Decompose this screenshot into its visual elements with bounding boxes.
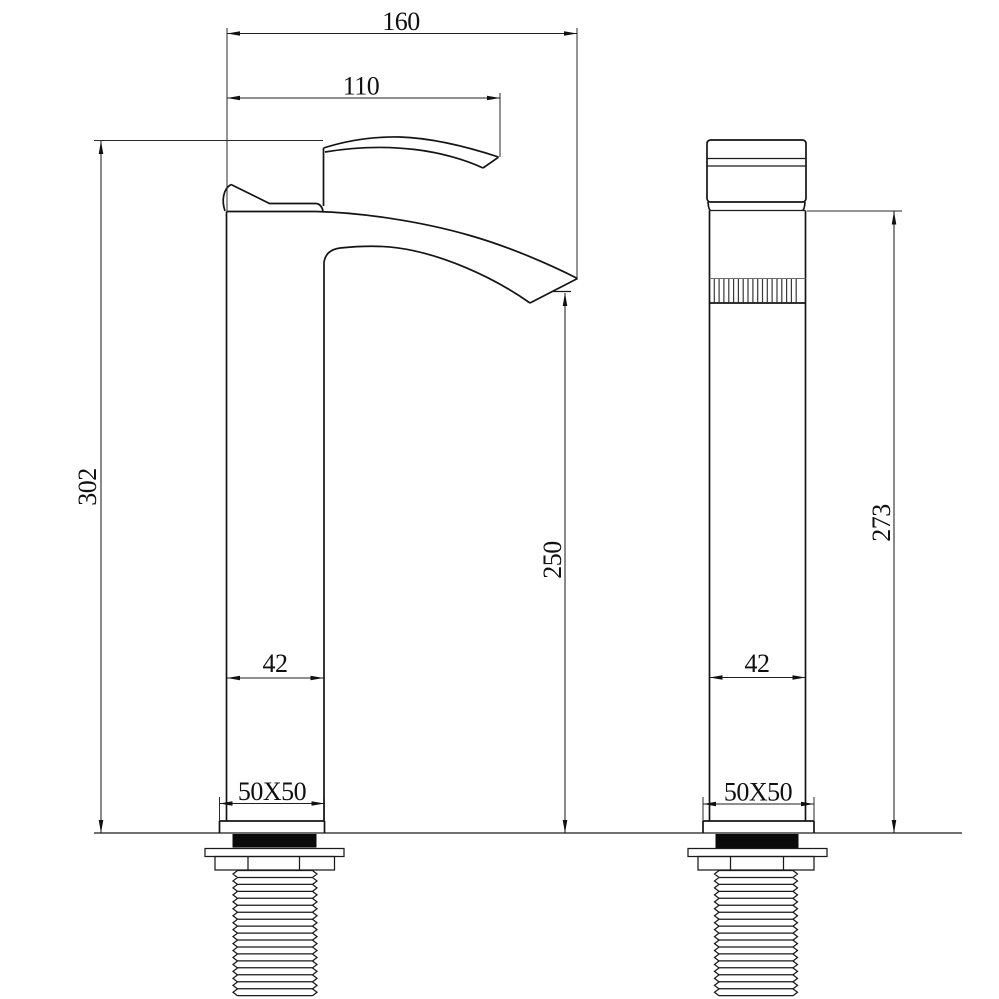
dim-label-273: 273 [867,504,896,542]
side-view: 160 110 302 250 [73,7,578,996]
dim-label-42-front: 42 [745,649,770,678]
gasket-front [716,835,798,848]
aerator-band [710,279,806,304]
generated-line [793,871,798,996]
technical-drawing-canvas: 160 110 302 250 [0,0,999,999]
dim-160: 160 [227,7,577,278]
dim-label-160: 160 [382,7,420,36]
mounting-flange-side [205,849,344,857]
dim-273: 273 [807,211,902,833]
handle-lever-side [324,137,499,206]
dim-label-110: 110 [343,72,380,101]
dim-110: 110 [227,72,500,158]
threaded-shank-front [715,871,798,996]
dim-42-front: 42 [710,649,806,680]
faucet-dimension-drawing: 160 110 302 250 [0,0,999,999]
mounting-nut-side [215,857,335,871]
dim-42-side: 42 [227,649,324,680]
dim-label-42-side: 42 [263,649,288,678]
generated-line [313,871,318,996]
generated-line [233,871,238,996]
dim-label-50x50-side: 50X50 [238,777,307,806]
base-plinth-front [703,821,814,833]
threaded-shank-side [233,871,317,996]
dim-50x50-front: 50X50 [703,778,814,822]
dim-label-250: 250 [538,541,567,579]
dim-label-50x50-front: 50X50 [724,778,793,807]
handle-base-wedge [223,185,323,212]
front-view: 273 42 50X50 [688,140,902,996]
generated-line [238,871,313,996]
generated-line [714,279,796,303]
handle-cap-front [707,140,806,211]
dim-250: 250 [538,293,567,833]
dim-label-302: 302 [73,468,102,506]
mounting-flange-front [688,849,827,857]
dim-50x50-side: 50X50 [220,777,325,821]
gasket-side [233,835,316,848]
dim-302: 302 [73,141,323,834]
base-plinth-side [220,821,325,833]
mounting-nut-front [698,857,814,871]
faucet-body-side [227,212,578,822]
generated-line [715,871,720,996]
generated-line [719,871,793,996]
